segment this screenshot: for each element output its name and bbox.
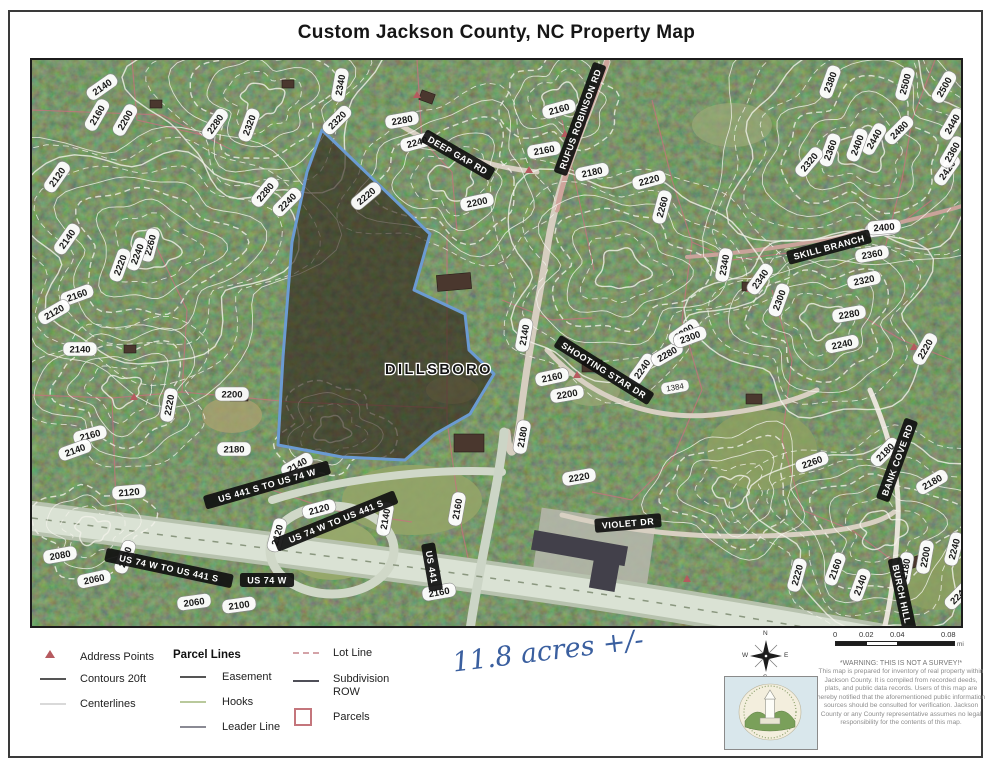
county-seal-logo	[724, 676, 818, 750]
map-canvas: 2140216022002280232023402320228022402160…	[32, 60, 961, 626]
contour-label: 2200	[215, 387, 249, 401]
disclaimer-body: This map is prepared for inventory of re…	[816, 668, 986, 728]
easement-line-icon	[180, 676, 206, 678]
county-seal-icon	[725, 677, 815, 747]
svg-text:2200: 2200	[221, 390, 242, 401]
disclaimer-headline: *WARNING: THIS IS NOT A SURVEY!*	[816, 660, 986, 667]
contour-label: 2120	[111, 484, 146, 501]
scale-bar-segments	[835, 641, 955, 646]
lot-line-icon	[293, 652, 319, 654]
legend-parcel-lines-header: Parcel Lines	[173, 649, 241, 661]
subdivision-row-line-icon	[293, 680, 319, 682]
svg-text:2140: 2140	[69, 345, 90, 356]
road-label: US 74 W	[240, 573, 294, 587]
svg-text:2120: 2120	[118, 487, 140, 500]
leader-line-icon	[180, 726, 206, 728]
address-point-icon	[45, 650, 55, 658]
disclaimer-text: *WARNING: THIS IS NOT A SURVEY!* This ma…	[816, 660, 986, 728]
svg-text:2400: 2400	[873, 222, 895, 235]
contour-label: 2140	[63, 342, 97, 356]
contour-label: 2400	[866, 219, 901, 236]
svg-text:2180: 2180	[223, 445, 244, 456]
svg-text:US 74 W: US 74 W	[247, 576, 287, 586]
centerline-icon	[40, 703, 66, 705]
place-label-dillsboro: DILLSBORO	[385, 362, 493, 378]
contour-line-icon	[40, 678, 66, 680]
scale-bar: 0 0.02 0.04 0.08 mi	[833, 630, 973, 656]
contour-label: 2180	[217, 442, 251, 456]
hooks-line-icon	[180, 701, 206, 703]
parcel-square-icon	[294, 708, 312, 726]
page-title: Custom Jackson County, NC Property Map	[0, 22, 993, 44]
map-image: 2140216022002280232023402320228022402160…	[30, 58, 963, 628]
